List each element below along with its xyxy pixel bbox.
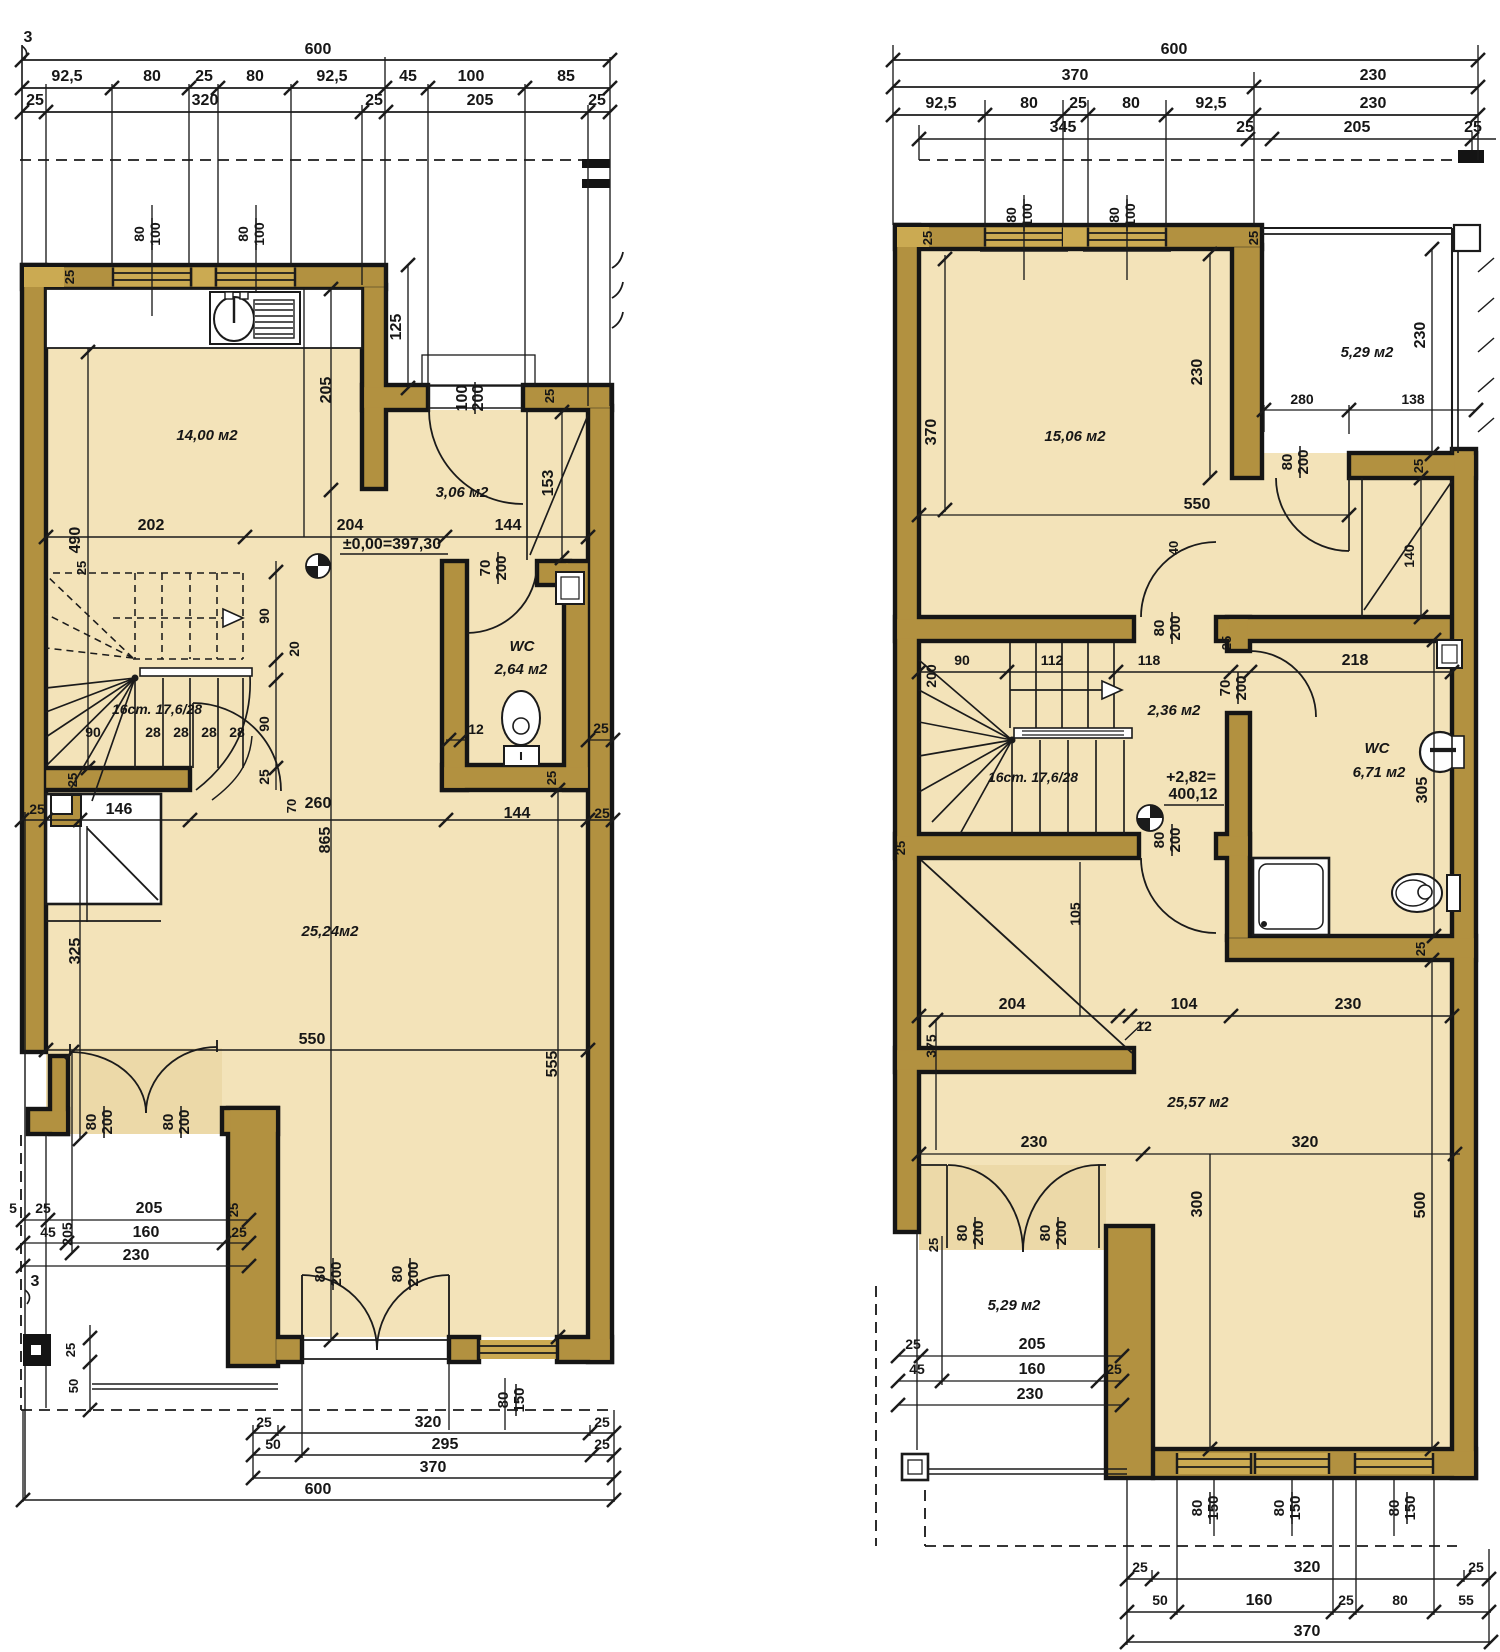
svg-text:25: 25 [542,389,557,403]
svg-text:230: 230 [1360,95,1387,112]
svg-text:25: 25 [905,1336,921,1352]
svg-text:200: 200 [493,555,510,580]
svg-text:125: 125 [388,314,405,341]
svg-text:25: 25 [74,561,89,575]
svg-text:50: 50 [1152,1592,1168,1608]
svg-text:50: 50 [66,1379,81,1393]
svg-text:144: 144 [504,805,531,822]
svg-text:160: 160 [1019,1361,1046,1378]
svg-text:295: 295 [432,1436,459,1453]
svg-text:25: 25 [26,92,44,109]
svg-text:16ст. 17,6/28: 16ст. 17,6/28 [112,701,202,717]
svg-text:25: 25 [1413,942,1428,956]
svg-text:28: 28 [201,724,217,740]
svg-text:600: 600 [305,1481,332,1498]
svg-text:100: 100 [147,222,163,246]
svg-text:205: 205 [59,1222,75,1246]
svg-text:90: 90 [256,716,272,732]
svg-text:200: 200 [176,1109,193,1134]
svg-text:80: 80 [131,226,147,242]
svg-text:25: 25 [256,1414,272,1430]
svg-text:5,29 м2: 5,29 м2 [988,1297,1041,1314]
svg-text:205: 205 [136,1200,163,1217]
svg-text:80: 80 [1189,1500,1206,1517]
svg-text:25: 25 [231,1224,247,1240]
svg-text:80: 80 [246,68,264,85]
svg-text:200: 200 [1295,449,1312,474]
svg-text:28: 28 [229,724,245,740]
svg-text:200: 200 [328,1261,345,1286]
svg-text:550: 550 [1184,496,1211,513]
svg-text:200: 200 [970,1220,987,1245]
svg-text:3,06 м2: 3,06 м2 [436,484,489,501]
svg-text:25: 25 [1464,119,1482,136]
svg-text:28: 28 [145,724,161,740]
svg-text:25: 25 [29,801,45,817]
svg-text:200: 200 [405,1261,422,1286]
svg-text:25: 25 [256,769,272,785]
svg-text:25: 25 [1069,95,1087,112]
svg-text:100: 100 [1122,203,1138,227]
svg-text:92,5: 92,5 [1195,95,1226,112]
svg-text:280: 280 [1290,391,1314,407]
svg-text:150: 150 [1287,1495,1304,1520]
svg-text:305: 305 [1414,777,1431,804]
svg-text:370: 370 [420,1459,447,1476]
svg-text:200: 200 [470,385,487,412]
svg-text:200: 200 [923,664,939,688]
svg-text:80: 80 [235,226,251,242]
svg-text:204: 204 [999,996,1026,1013]
svg-text:600: 600 [305,41,332,58]
svg-text:45: 45 [40,1224,56,1240]
svg-text:600: 600 [1161,41,1188,58]
svg-text:12: 12 [1136,1018,1152,1034]
svg-text:230: 230 [1412,322,1429,349]
svg-text:80: 80 [1392,1592,1408,1608]
svg-text:3: 3 [24,29,33,46]
svg-text:144: 144 [495,517,522,534]
svg-text:85: 85 [557,68,575,85]
svg-text:204: 204 [337,517,364,534]
svg-text:202: 202 [138,517,165,534]
svg-text:80: 80 [954,1225,971,1242]
svg-text:100: 100 [1019,203,1035,227]
svg-text:260: 260 [305,795,332,812]
svg-text:146: 146 [106,801,133,818]
svg-text:25,24м2: 25,24м2 [301,923,360,940]
svg-text:70: 70 [477,560,494,577]
svg-text:230: 230 [1360,67,1387,84]
svg-text:2,36 м2: 2,36 м2 [1147,702,1201,719]
svg-text:150: 150 [1402,1495,1419,1520]
svg-text:100: 100 [251,222,267,246]
svg-text:100: 100 [458,68,485,85]
svg-text:25: 25 [594,1436,610,1452]
svg-text:±0,00=397,30: ±0,00=397,30 [343,536,441,553]
svg-text:112: 112 [1041,652,1064,668]
svg-text:160: 160 [133,1224,160,1241]
svg-text:25: 25 [594,1414,610,1430]
svg-text:150: 150 [511,1387,528,1412]
svg-text:25: 25 [226,1203,241,1217]
svg-text:375: 375 [923,1034,939,1058]
svg-text:WC: WC [1365,740,1391,757]
svg-text:25: 25 [1106,1361,1122,1377]
svg-text:70: 70 [1217,680,1234,697]
svg-text:550: 550 [299,1031,326,1048]
svg-text:25,57 м2: 25,57 м2 [1166,1094,1229,1111]
svg-text:25: 25 [594,805,610,821]
svg-text:70: 70 [284,799,299,813]
svg-text:80: 80 [1122,95,1140,112]
svg-text:80: 80 [83,1114,100,1131]
svg-text:92,5: 92,5 [51,68,82,85]
svg-text:230: 230 [1335,996,1362,1013]
svg-text:80: 80 [1279,454,1296,471]
svg-text:25: 25 [926,1238,941,1252]
svg-text:90: 90 [954,652,970,668]
svg-text:2,64 м2: 2,64 м2 [494,661,548,678]
svg-text:25: 25 [62,270,77,284]
svg-text:80: 80 [1003,207,1019,223]
svg-text:140: 140 [1401,544,1417,568]
svg-text:200: 200 [1167,827,1184,852]
svg-text:320: 320 [415,1414,442,1431]
svg-text:153: 153 [540,470,557,497]
svg-text:80: 80 [495,1392,512,1409]
svg-text:205: 205 [1019,1336,1046,1353]
svg-text:25: 25 [35,1200,51,1216]
svg-text:90: 90 [85,724,101,740]
svg-text:490: 490 [67,527,84,554]
svg-text:25: 25 [365,92,383,109]
svg-text:80: 80 [143,68,161,85]
svg-text:25: 25 [65,773,80,787]
svg-text:300: 300 [1189,1191,1206,1218]
svg-text:25: 25 [1338,1592,1354,1608]
svg-text:5: 5 [9,1200,17,1216]
svg-text:400,12: 400,12 [1169,786,1218,803]
svg-text:118: 118 [1138,652,1161,668]
svg-text:80: 80 [1271,1500,1288,1517]
svg-text:25: 25 [544,771,559,785]
svg-text:200: 200 [1053,1220,1070,1245]
svg-text:218: 218 [1342,652,1369,669]
svg-text:55: 55 [1458,1592,1474,1608]
svg-text:16ст. 17,6/28: 16ст. 17,6/28 [988,769,1078,785]
svg-text:80: 80 [160,1114,177,1131]
svg-text:25: 25 [1132,1559,1148,1575]
svg-text:25: 25 [1411,459,1426,473]
svg-text:25: 25 [920,231,935,245]
svg-text:12: 12 [468,721,484,737]
svg-text:25: 25 [1246,231,1261,245]
svg-text:370: 370 [923,419,940,446]
svg-text:230: 230 [1017,1386,1044,1403]
svg-text:45: 45 [399,68,417,85]
svg-text:80: 80 [1106,207,1122,223]
svg-text:325: 325 [67,938,84,965]
svg-text:230: 230 [123,1247,150,1264]
svg-text:320: 320 [192,92,219,109]
svg-text:25: 25 [1219,636,1234,650]
svg-text:205: 205 [467,92,494,109]
svg-text:5,29 м2: 5,29 м2 [1341,344,1394,361]
svg-text:370: 370 [1294,1623,1321,1640]
svg-text:28: 28 [173,724,189,740]
svg-text:92,5: 92,5 [925,95,956,112]
svg-text:25: 25 [893,841,908,855]
svg-text:25: 25 [588,92,606,109]
svg-text:80: 80 [1020,95,1038,112]
svg-text:25: 25 [1236,119,1254,136]
svg-text:15,06 м2: 15,06 м2 [1044,428,1106,445]
svg-text:200: 200 [1233,675,1250,700]
svg-text:+2,82=: +2,82= [1166,769,1216,786]
svg-text:104: 104 [1171,996,1198,1013]
svg-text:138: 138 [1401,391,1425,407]
svg-text:80: 80 [1151,620,1168,637]
svg-text:80: 80 [312,1266,329,1283]
svg-text:92,5: 92,5 [316,68,347,85]
svg-text:205: 205 [1344,119,1371,136]
svg-text:25: 25 [195,68,213,85]
svg-text:320: 320 [1294,1559,1321,1576]
svg-text:45: 45 [909,1361,925,1377]
svg-text:3: 3 [31,1273,40,1290]
svg-text:25: 25 [63,1343,78,1357]
svg-text:WC: WC [510,638,536,655]
svg-text:50: 50 [265,1436,281,1452]
svg-text:320: 320 [1292,1134,1319,1151]
svg-text:370: 370 [1062,67,1089,84]
svg-text:6,71 м2: 6,71 м2 [1353,764,1406,781]
svg-text:14,00 м2: 14,00 м2 [176,427,238,444]
svg-text:25: 25 [593,720,609,736]
svg-text:20: 20 [286,641,302,657]
svg-text:230: 230 [1189,359,1206,386]
svg-text:555: 555 [544,1051,561,1078]
svg-text:80: 80 [1151,832,1168,849]
svg-text:80: 80 [389,1266,406,1283]
svg-text:80: 80 [1037,1225,1054,1242]
svg-text:200: 200 [99,1109,116,1134]
svg-text:90: 90 [256,608,272,624]
svg-text:500: 500 [1412,1192,1429,1219]
svg-text:40: 40 [1166,541,1181,555]
svg-text:105: 105 [1067,902,1083,926]
svg-text:200: 200 [1167,615,1184,640]
svg-text:205: 205 [318,377,335,404]
svg-text:160: 160 [1246,1592,1273,1609]
svg-text:25: 25 [1468,1559,1484,1575]
svg-text:865: 865 [317,827,334,854]
svg-text:100: 100 [454,385,471,412]
svg-text:230: 230 [1021,1134,1048,1151]
